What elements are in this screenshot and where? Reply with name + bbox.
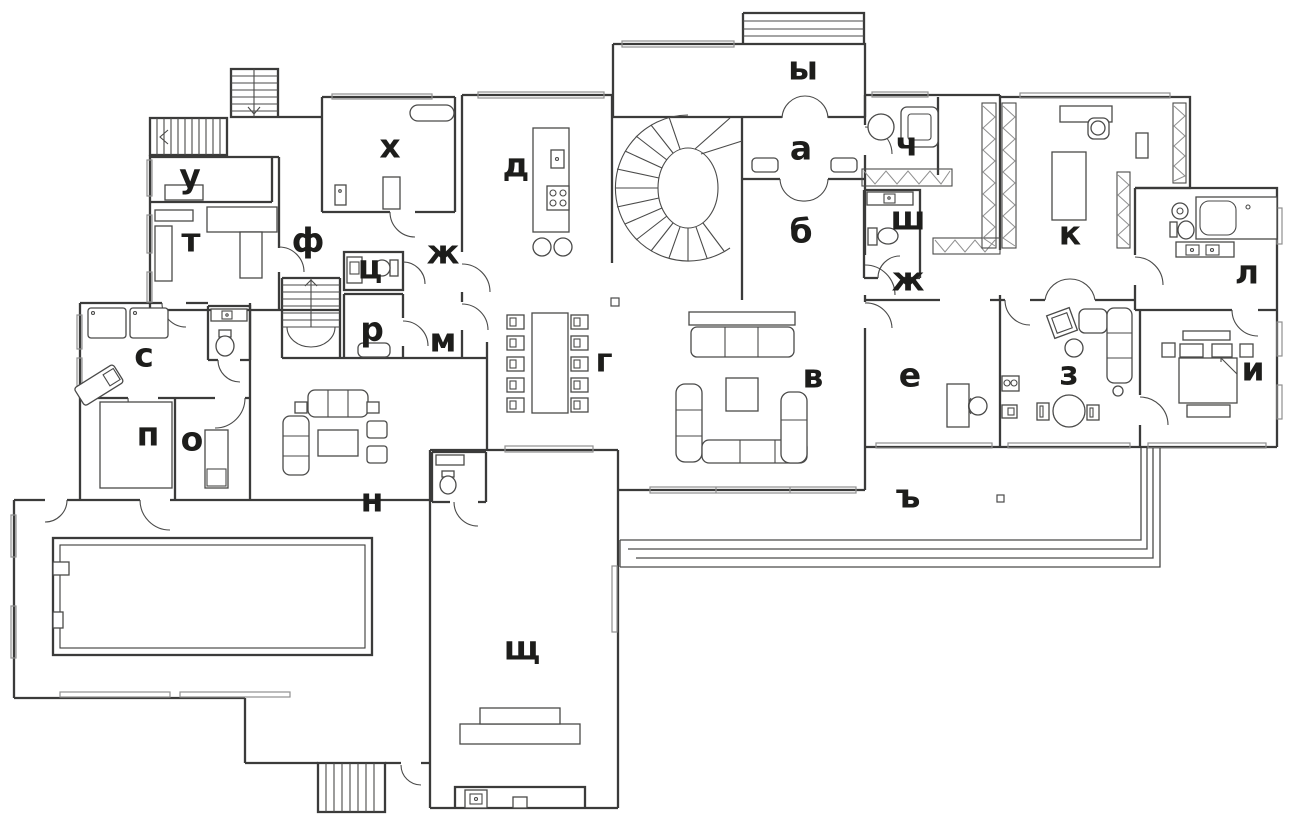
room-label-с22: с: [134, 336, 154, 375]
room-label-ш4: ш: [890, 199, 925, 238]
room-label-н25: н: [361, 481, 384, 520]
room-label-ы0: ы: [788, 49, 818, 88]
u-turn-staircase: [282, 278, 340, 347]
sofa: [691, 327, 794, 357]
wc-fixtures-spa: [211, 309, 247, 356]
terrace-marker: [997, 495, 1004, 502]
massage-table: [88, 308, 126, 338]
room-label-г17: г: [595, 341, 612, 380]
toilet: [440, 476, 456, 494]
family-room-sofas: [283, 390, 387, 475]
stool: [1091, 121, 1105, 135]
master-bed: [1162, 331, 1253, 417]
round-table: [1053, 395, 1085, 427]
wc-fixtures-sauna: [436, 455, 464, 494]
lounger: [74, 364, 124, 406]
room-label-ф12: ф: [292, 221, 325, 260]
bidet: [1172, 203, 1188, 219]
double-doors-dressing: [1045, 279, 1095, 300]
platform: [460, 724, 580, 744]
vanity: [1176, 242, 1234, 257]
room-label-и21: и: [1241, 350, 1264, 389]
coffee-table: [318, 430, 358, 456]
upper-staircase: [231, 69, 278, 117]
living-room-sofas: [676, 312, 807, 463]
massage-table: [130, 308, 168, 338]
nightstand: [1162, 343, 1175, 357]
room-label-з20: з: [1059, 354, 1078, 393]
hob: [547, 186, 569, 210]
pool-steps: [53, 562, 69, 575]
room-label-к6: к: [1059, 214, 1081, 253]
french-doors-terrace: [782, 96, 828, 118]
room-label-щ26: щ: [504, 629, 540, 668]
sink: [868, 114, 894, 140]
kitchen-island: [533, 128, 572, 256]
sink: [551, 150, 564, 168]
toilet: [1178, 221, 1194, 239]
room-label-в18: в: [803, 357, 824, 396]
island-dresser: [1052, 152, 1086, 220]
room-label-х8: х: [379, 127, 400, 166]
terrace-steps-bottom: [326, 763, 374, 812]
laundry-appliances: [1002, 376, 1019, 418]
pool-ladder: [53, 612, 63, 628]
room-label-т11: т: [181, 221, 200, 260]
french-doors-hall: [780, 179, 828, 201]
headboard: [1183, 331, 1230, 340]
armchair: [367, 446, 387, 463]
windows: [11, 41, 1282, 697]
stove: [465, 790, 487, 808]
bar-stool: [554, 238, 572, 256]
console: [689, 312, 795, 325]
bench: [1187, 405, 1230, 417]
room-label-б2: б: [789, 212, 812, 251]
entry-steps: [157, 118, 220, 155]
pillow: [1180, 344, 1203, 357]
desk-chair: [969, 397, 987, 415]
room-label-д9: д: [503, 146, 530, 185]
coffee-table: [726, 378, 758, 411]
armchair: [367, 421, 387, 438]
room-label-м16: м: [430, 321, 457, 360]
column-marker: [611, 298, 619, 306]
room-label-ъ27: ъ: [896, 477, 921, 516]
room-label-а1: а: [790, 129, 812, 168]
room-label-ч3: ч: [896, 125, 919, 164]
room-label-у10: у: [179, 157, 201, 196]
bench: [752, 158, 778, 172]
terrace-steps-top: [743, 21, 864, 36]
office-desk: [947, 384, 987, 427]
master-bathroom-fixtures: [1170, 197, 1277, 257]
dining-table-set: [507, 313, 588, 413]
bench: [831, 158, 857, 172]
bar-stool: [533, 238, 551, 256]
swimming-pool: [53, 538, 372, 655]
floor-plan: ыабчшжклхдутфцжрмгвезиспонщъ: [0, 0, 1294, 829]
toilet: [216, 336, 234, 356]
room-label-р15: р: [360, 310, 384, 349]
room-label-п23: п: [137, 415, 160, 454]
room-label-л7: л: [1235, 253, 1259, 292]
lounge-set: [1037, 308, 1132, 427]
lounger: [205, 430, 228, 488]
room-label-о24: о: [181, 420, 204, 459]
floor-plan-drawing: ыабчшжклхдутфцжрмгвезиспонщъ: [0, 0, 1294, 829]
room-label-ж14: ж: [427, 233, 460, 272]
room-label-е19: е: [899, 356, 921, 395]
spiral-staircase: [615, 115, 742, 261]
sauna-furniture: [455, 708, 585, 808]
dressing-room-furniture: [1052, 106, 1148, 220]
platform-upper: [480, 708, 560, 724]
room-label-ж5: ж: [892, 260, 925, 299]
pillow: [1212, 344, 1232, 357]
room-label-ц13: ц: [358, 248, 382, 287]
